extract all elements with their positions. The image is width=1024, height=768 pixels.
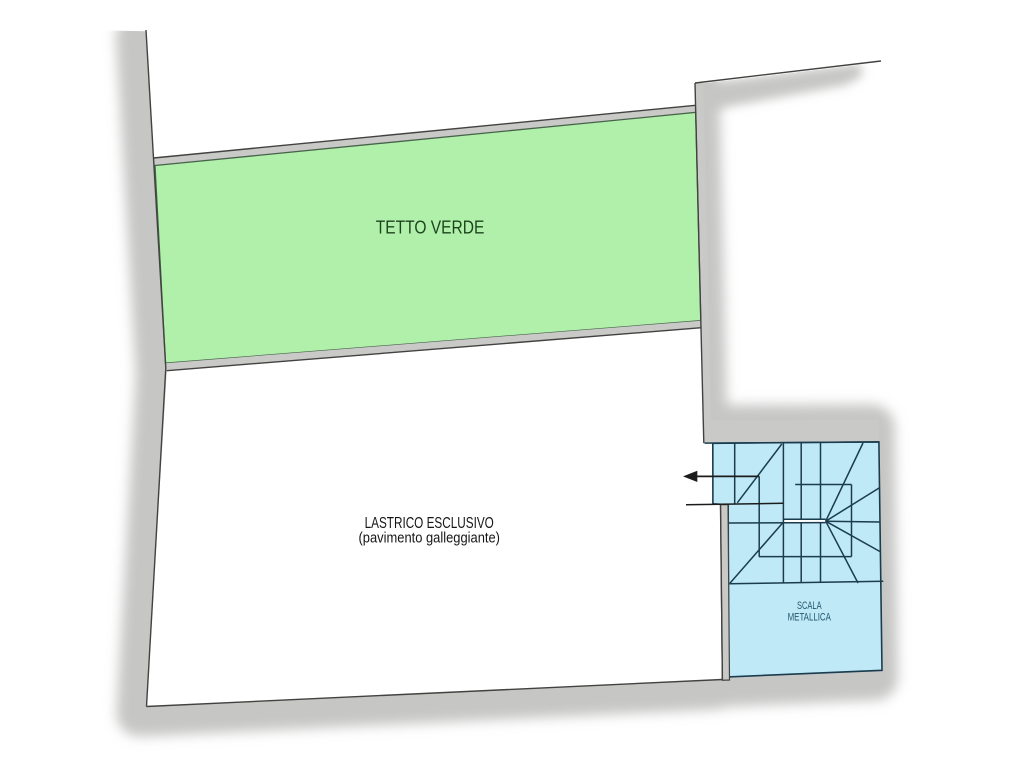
svg-text:SCALA: SCALA [797,600,822,612]
svg-text:TETTO VERDE: TETTO VERDE [376,218,485,238]
svg-text:METALLICA: METALLICA [788,612,832,624]
svg-text:(pavimento galleggiante): (pavimento galleggiante) [359,530,501,547]
